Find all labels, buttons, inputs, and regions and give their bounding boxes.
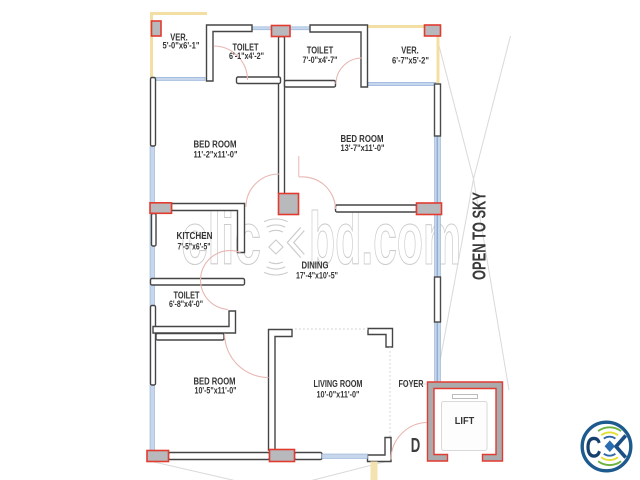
- svg-text:5'-0"x6'-1": 5'-0"x6'-1": [163, 41, 200, 51]
- svg-text:11'-2"x11'-0": 11'-2"x11'-0": [194, 150, 238, 160]
- svg-text:6'-8"x4'-0": 6'-8"x4'-0": [169, 299, 203, 309]
- svg-text:C: C: [586, 432, 602, 465]
- svg-text:OPEN TO SKY: OPEN TO SKY: [469, 192, 489, 280]
- svg-text:6'-7"x5'-2": 6'-7"x5'-2": [392, 55, 429, 65]
- svg-text:6'-1"x4'-2": 6'-1"x4'-2": [229, 51, 264, 61]
- svg-text:KITCHEN: KITCHEN: [177, 231, 213, 242]
- svg-text:17'-4"x10'-5": 17'-4"x10'-5": [296, 271, 338, 281]
- svg-text:7'-5"x6'-5": 7'-5"x6'-5": [178, 242, 211, 252]
- svg-text:10'-0"x11'-0": 10'-0"x11'-0": [317, 390, 360, 400]
- svg-text:7'-0"x4'-7": 7'-0"x4'-7": [303, 55, 338, 65]
- svg-text:LIVING ROOM: LIVING ROOM: [314, 379, 363, 390]
- svg-text:LIFT: LIFT: [455, 416, 475, 427]
- svg-text:FOYER: FOYER: [399, 379, 424, 390]
- svg-text:13'-7"x11'-0": 13'-7"x11'-0": [341, 143, 385, 153]
- svg-text:10'-5"x11'-0": 10'-5"x11'-0": [195, 386, 237, 396]
- svg-text:D: D: [411, 435, 421, 457]
